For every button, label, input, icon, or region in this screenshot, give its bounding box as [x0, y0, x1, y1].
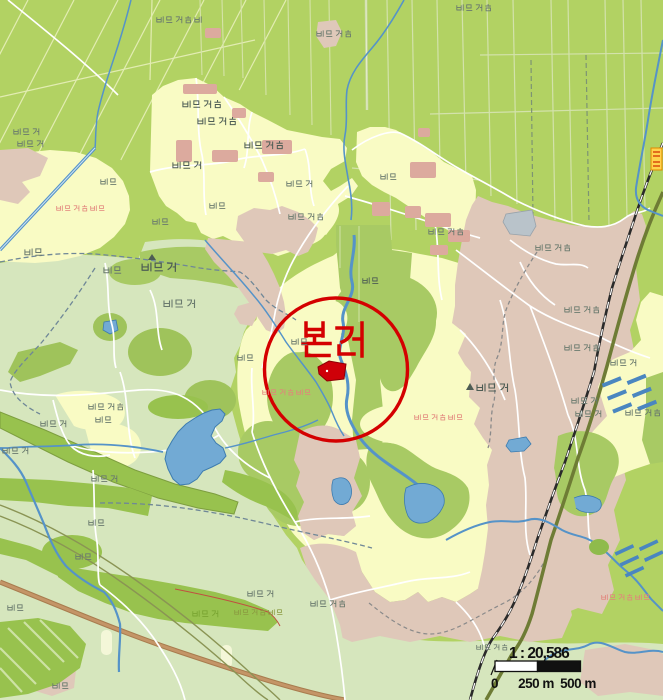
svg-text:500 m: 500 m [560, 676, 596, 691]
svg-text:250 m: 250 m [518, 676, 554, 691]
svg-text:0: 0 [491, 676, 498, 691]
svg-text:1 : 20,586: 1 : 20,586 [509, 645, 570, 662]
